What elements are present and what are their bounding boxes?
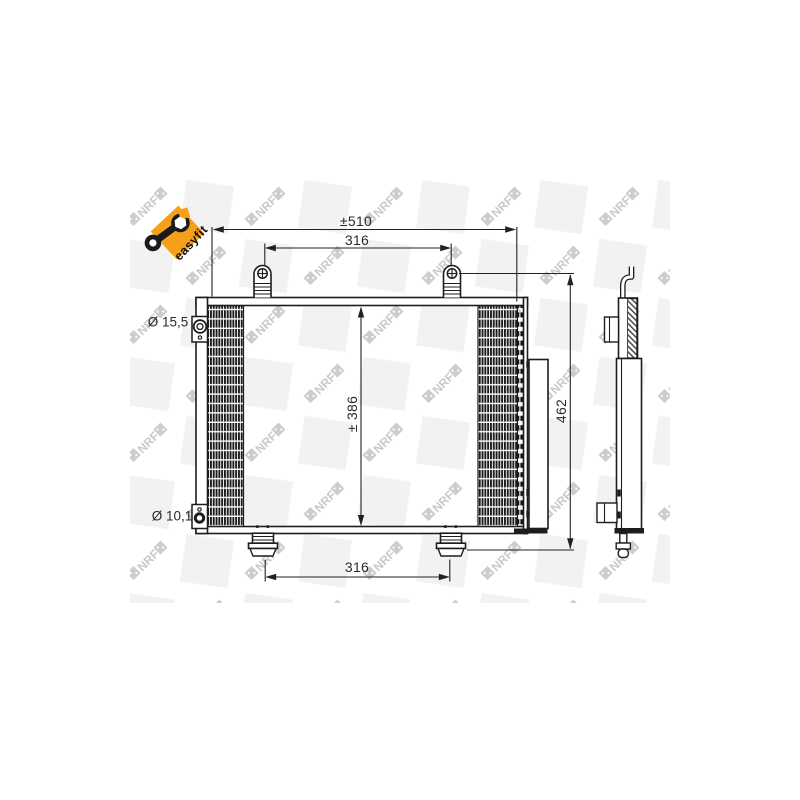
- bottom-header-plate: [196, 527, 528, 534]
- side-top-hatch: [628, 299, 637, 358]
- top-header-plate: [196, 298, 528, 306]
- right-header-tube: [524, 298, 528, 534]
- side-body: [617, 359, 642, 530]
- label-top-mount-spacing: 316: [345, 232, 369, 248]
- top-mount-bracket-left: [254, 266, 271, 298]
- label-overall-width: ±510: [340, 213, 372, 229]
- top-mount-bracket-right: [444, 266, 461, 298]
- side-body-nub: [617, 512, 621, 519]
- fin-pack-right: [478, 306, 518, 527]
- side-bottom-bar: [615, 528, 645, 534]
- label-overall-height: 462: [553, 399, 569, 423]
- drawing-canvas: NRF NRF: [0, 0, 800, 800]
- label-port-bottom-diameter: Ø 10,1: [152, 509, 193, 524]
- fin-teeth-right: [518, 306, 524, 527]
- condenser-technical-drawing: NRF NRF: [0, 0, 800, 800]
- side-bracket-bottom: [597, 503, 617, 523]
- fin-pack-left: [208, 306, 244, 527]
- label-port-top-diameter: Ø 15,5: [148, 315, 189, 330]
- side-body-nub: [617, 490, 621, 497]
- drier-tab: [526, 362, 529, 368]
- drier-bottom-cap: [514, 529, 548, 534]
- drier-tab: [526, 489, 529, 496]
- receiver-drier: [529, 360, 548, 529]
- port-fitting-bottom: [192, 505, 208, 529]
- port-fitting-top: [192, 317, 208, 343]
- drier-tab: [526, 511, 529, 518]
- label-bottom-mount-spacing: 316: [345, 559, 369, 575]
- label-core-height: ± 386: [344, 396, 360, 432]
- side-bracket-top: [605, 317, 619, 342]
